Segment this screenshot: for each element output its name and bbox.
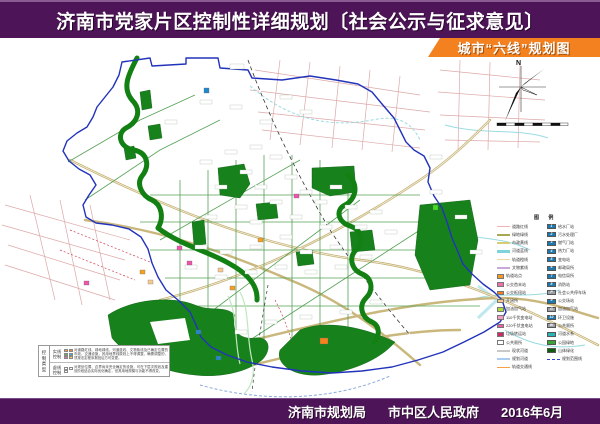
legend-item: G加油加气站 (547, 307, 598, 312)
notes-row-swatches (63, 365, 74, 375)
legend-swatch (497, 291, 504, 296)
legend-item-label: 公共厕所 (506, 341, 522, 345)
notes-row: 实线控制对道路红线、绿地绿线、河道蓝线、文物紫线及已确定位置的市政、交通设施，其… (50, 346, 169, 363)
legend-swatch (497, 274, 504, 279)
legend-item-label: 开闭所 (506, 299, 518, 303)
legend-item-label: 热力厂站 (558, 249, 574, 253)
legend-item: W公共厕所 (547, 323, 598, 328)
notes-row-text: 对规划位置、边界尚未完全确定的设施，可在下层次规划及建设阶段结合实际优化确定，但… (74, 365, 168, 375)
legend-item-label: 加油加气站 (558, 307, 578, 311)
legend-item: 9公交场站 (547, 299, 598, 304)
notes-header: 控制类型 (39, 346, 50, 376)
legend-swatch (497, 299, 504, 304)
legend-panel: 道路红线绿地绿线市政黄线河道蓝线轨道橙线文物紫线轨道站点公交首末站公交枢纽站开闭… (497, 224, 598, 370)
legend-item: 5变电站 (547, 257, 598, 262)
legend-swatch (547, 340, 556, 345)
legend-swatch (497, 340, 504, 345)
legend-item-label: 道路红线 (512, 225, 528, 229)
legend-item: 山体绿化 (547, 348, 598, 353)
legend-swatch (497, 226, 510, 227)
legend-item-label: 220千伏变电站 (506, 324, 533, 328)
legend-swatch (497, 367, 510, 368)
legend-swatch: 6 (547, 266, 556, 271)
legend-item-label: 规划河道 (512, 357, 528, 361)
legend-swatch: 5 (547, 257, 556, 262)
legend-item: 6邮政局所 (547, 265, 598, 270)
legend-item-label: 公交场站 (558, 299, 574, 303)
legend-swatch: G (547, 307, 556, 312)
legend-item-label: 电信局所 (558, 274, 574, 278)
legend-item: 市政黄线 (497, 241, 543, 246)
legend-item-label: 现状河道 (512, 349, 528, 353)
legend-item: 7电信局所 (547, 274, 598, 279)
legend-swatch: 10 (547, 315, 556, 320)
legend-item: 110千伏变电站 (497, 315, 543, 320)
legend-item-label: 污水处理厂 (558, 233, 578, 237)
legend-swatch: 8 (547, 282, 556, 287)
legend-item-label: 环卫设施 (558, 316, 574, 320)
legend-item: 轨道橙线 (497, 257, 543, 262)
legend-item: 绿地绿线 (497, 232, 543, 237)
map-subtitle: 城市“六线”规划图 (457, 38, 570, 57)
legend-swatch (547, 348, 556, 353)
legend-swatch: 3 (547, 241, 556, 246)
subtitle-ribbon: 城市“六线”规划图 (428, 38, 600, 57)
legend-item: 公共厕所 (497, 340, 543, 345)
notes-row-label: 虚线控制 (51, 365, 63, 375)
control-type-notes: 控制类型 实线控制对道路红线、绿地绿线、河道蓝线、文物紫线及已确定位置的市政、交… (38, 345, 170, 377)
legend-item: 公交首末站 (497, 282, 543, 287)
title-banner: 济南市党家片区控制性详细规划〔社会公示与征求意见〕 (0, 0, 600, 38)
legend-item: 加油加气站 (497, 307, 543, 312)
map-label-boxes (165, 64, 482, 334)
legend-item: 4热力厂站 (547, 249, 598, 254)
legend-item: 2污水处理厂 (547, 232, 598, 237)
notes-row: 虚线控制对规划位置、边界尚未完全确定的设施，可在下层次规划及建设阶段结合实际优化… (50, 363, 169, 376)
legend-item: P社会公共停车场 (547, 290, 598, 295)
legend-item-label: 市政黄线 (512, 241, 528, 245)
legend-swatch (497, 307, 504, 312)
legend-item: 道路红线 (497, 224, 543, 229)
legend-swatch (547, 359, 560, 360)
legend-item-label: 轨道橙线 (512, 258, 528, 262)
legend-swatch (497, 315, 504, 320)
legend-item: 3燃气门站 (547, 241, 598, 246)
legend-swatch (497, 358, 510, 359)
legend-swatch (497, 350, 510, 351)
footer-agency-2: 市中区人民政府 (388, 402, 479, 421)
legend-item-label: 山体绿化 (558, 349, 574, 353)
legend-swatch (497, 259, 510, 260)
legend-item-label: 公交枢纽站 (506, 291, 526, 295)
legend-title: 图 例 (534, 214, 557, 221)
notes-rows: 实线控制对道路红线、绿地绿线、河道蓝线、文物紫线及已确定位置的市政、交通设施，其… (50, 346, 169, 376)
legend-column-lines: 道路红线绿地绿线市政黄线河道蓝线轨道橙线文物紫线轨道站点公交首末站公交枢纽站开闭… (497, 224, 543, 370)
legend-item: 开闭所 (497, 299, 543, 304)
scale-bar (497, 123, 568, 126)
legend-item-label: 公共厕所 (558, 324, 574, 328)
legend-item: 文物紫线 (497, 265, 543, 270)
legend-item: 1给水厂站 (547, 224, 598, 229)
legend-item-label: 河道水系 (558, 332, 574, 336)
legend-item-label: 公园绿地 (558, 341, 574, 345)
notes-row-label: 实线控制 (51, 348, 63, 361)
footer-date: 2016年6月 (501, 402, 563, 421)
legend-swatch: 2 (547, 232, 556, 237)
legend-swatch (497, 234, 510, 235)
legend-swatch (497, 282, 504, 287)
legend-item-label: 给水厂站 (558, 225, 574, 229)
compass-icon (499, 66, 546, 121)
legend-item-label: 规划范围线 (562, 357, 582, 361)
legend-item: 10环卫设施 (547, 315, 598, 320)
legend-item-label: 文物紫线 (512, 266, 528, 270)
legend-item: 规划范围线 (547, 357, 598, 362)
legend-item-label: 绿地绿线 (512, 233, 528, 237)
legend-item-label: 公交首末站 (506, 283, 526, 287)
legend-item: 公交枢纽站 (497, 290, 543, 295)
legend-item-label: 消防站 (558, 283, 570, 287)
legend-swatch: 1 (547, 224, 556, 229)
north-label: N (516, 60, 521, 67)
notes-row-swatches (63, 348, 74, 361)
legend-item: 轨道站点 (497, 274, 543, 279)
footer-bar: 济南市规划局 市中区人民政府 2016年6月 (0, 398, 600, 424)
legend-item: 垃圾转运站 (497, 332, 543, 337)
legend-item: 8消防站 (547, 282, 598, 287)
legend-swatch (497, 250, 510, 253)
legend-swatch: 4 (547, 249, 556, 254)
legend-swatch: 7 (547, 274, 556, 279)
legend-item-label: 垃圾转运站 (506, 332, 526, 336)
legend-item-label: 加油加气站 (506, 307, 526, 311)
legend-swatch (547, 332, 556, 337)
legend-item: 规划河道 (497, 357, 543, 362)
legend-item-label: 河道蓝线 (512, 249, 528, 253)
legend-item: 220千伏变电站 (497, 323, 543, 328)
legend-item: 河道水系 (547, 332, 598, 337)
page-title: 济南市党家片区控制性详细规划〔社会公示与征求意见〕 (56, 7, 544, 34)
legend-item: 轨道交通线 (497, 365, 543, 370)
legend-swatch: P (547, 290, 556, 295)
legend-column-facilities: 1给水厂站2污水处理厂3燃气门站4热力厂站5变电站6邮政局所7电信局所8消防站P… (547, 224, 598, 370)
legend-item-label: 邮政局所 (558, 266, 574, 270)
notes-row-text: 对道路红线、绿地绿线、河道蓝线、文物紫线及已确定位置的市政、交通设施，其用地界线… (74, 348, 168, 361)
legend-swatch (497, 242, 510, 243)
legend-swatch: W (547, 323, 556, 328)
footer-agency-1: 济南市规划局 (288, 402, 366, 421)
legend-item-label: 轨道站点 (506, 274, 522, 278)
legend-swatch (497, 267, 510, 268)
legend-item-label: 110千伏变电站 (506, 316, 532, 320)
legend-item: 现状河道 (497, 348, 543, 353)
footer-credits: 济南市规划局 市中区人民政府 2016年6月 (288, 402, 563, 421)
legend-item-label: 轨道交通线 (512, 365, 532, 369)
legend-swatch (497, 324, 504, 329)
legend-item: 公园绿地 (547, 340, 598, 345)
legend-swatch: 9 (547, 299, 556, 304)
legend-item: 河道蓝线 (497, 249, 543, 254)
legend-item-label: 变电站 (558, 258, 570, 262)
legend-swatch (497, 332, 504, 337)
legend-item-label: 社会公共停车场 (558, 291, 586, 295)
legend-item-label: 燃气门站 (558, 241, 574, 245)
